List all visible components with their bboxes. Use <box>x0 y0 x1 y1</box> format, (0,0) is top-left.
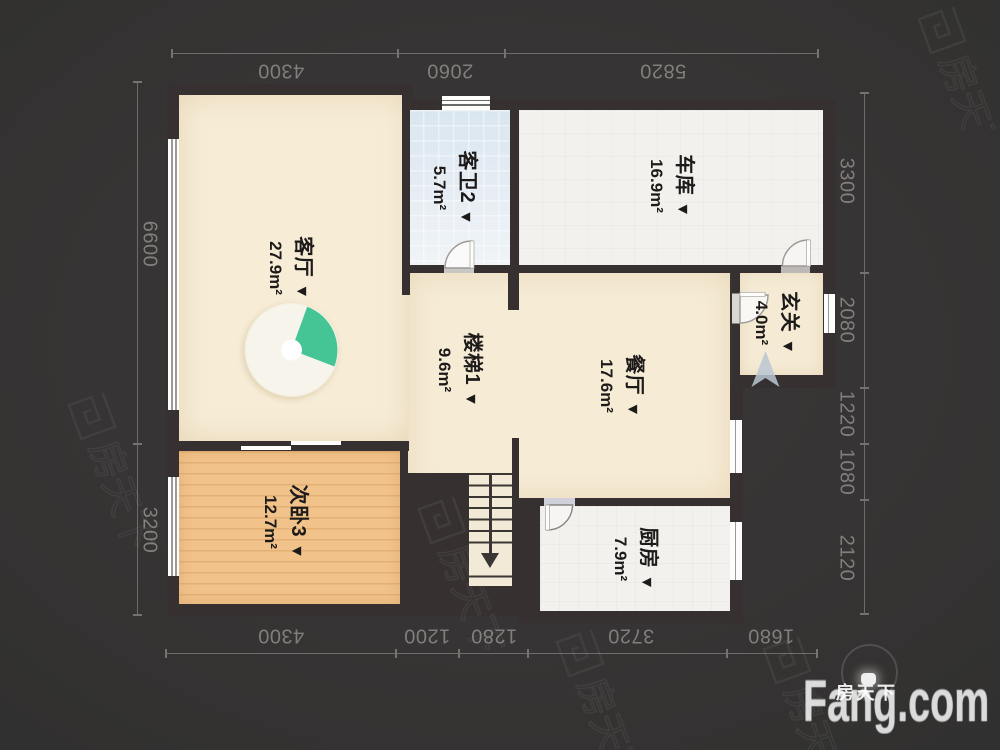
svg-text:房天下: 房天下 <box>431 539 509 661</box>
svg-text:房天下: 房天下 <box>931 49 1000 130</box>
svg-text:房天下: 房天下 <box>81 435 159 557</box>
svg-text:房天下: 房天下 <box>569 672 647 750</box>
